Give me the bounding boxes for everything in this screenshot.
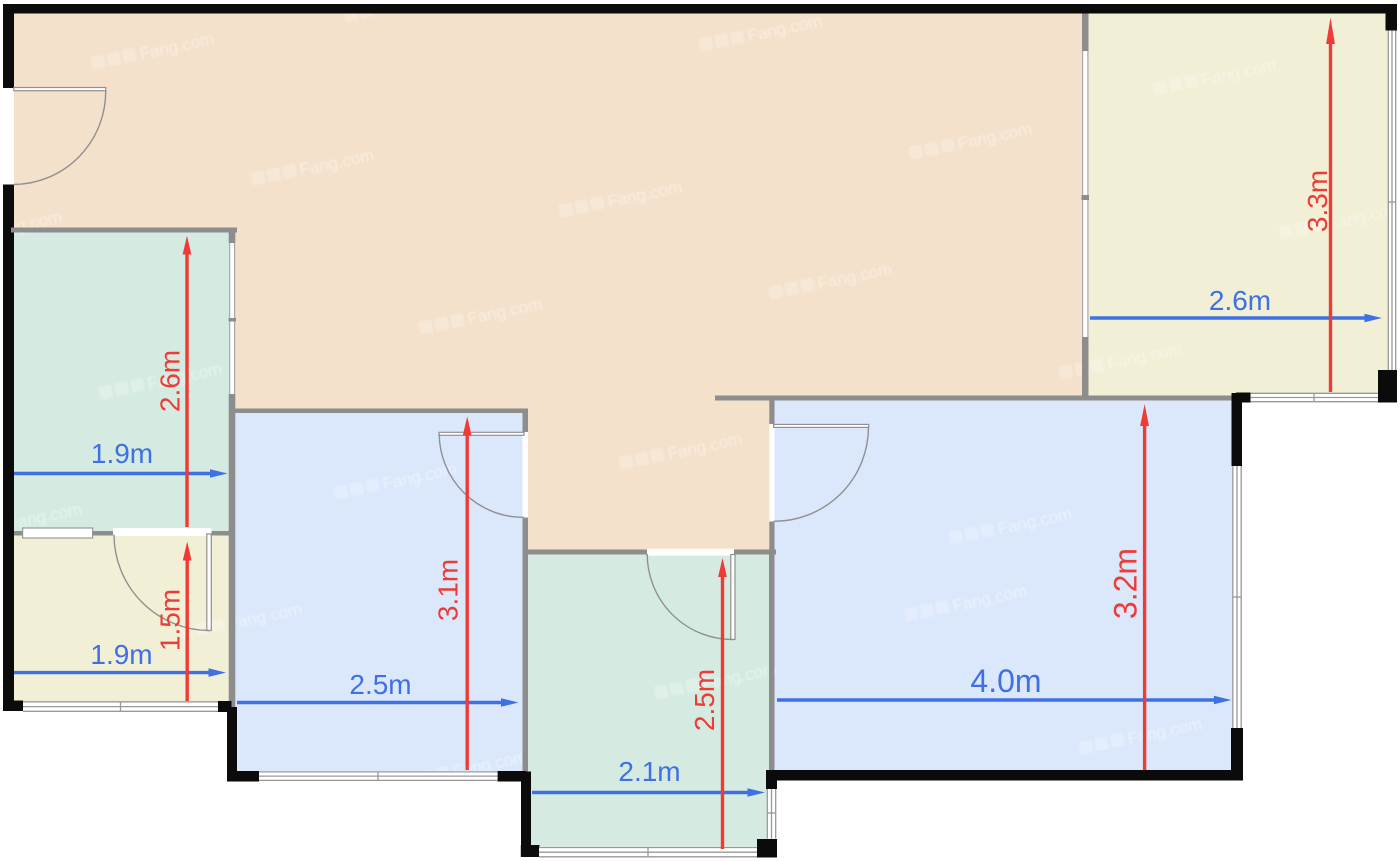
svg-text:1.9m: 1.9m [91, 438, 153, 469]
svg-text:2.1m: 2.1m [618, 756, 680, 787]
svg-text:2.6m: 2.6m [1209, 285, 1271, 316]
svg-text:Fang.com: Fang.com [106, 769, 184, 803]
svg-text:3.1m: 3.1m [433, 559, 464, 621]
svg-text:4.0m: 4.0m [970, 663, 1041, 699]
svg-text:1.9m: 1.9m [90, 639, 152, 670]
svg-text:1.5m: 1.5m [155, 589, 186, 651]
svg-text:Fang.com: Fang.com [1316, 519, 1394, 553]
svg-text:3.3m: 3.3m [1302, 170, 1333, 232]
svg-text:2.5m: 2.5m [349, 669, 411, 700]
svg-text:2.6m: 2.6m [155, 350, 186, 412]
svg-text:Fang.com: Fang.com [1236, 759, 1314, 793]
svg-text:2.5m: 2.5m [689, 669, 720, 731]
svg-text:3.2m: 3.2m [1108, 548, 1144, 619]
